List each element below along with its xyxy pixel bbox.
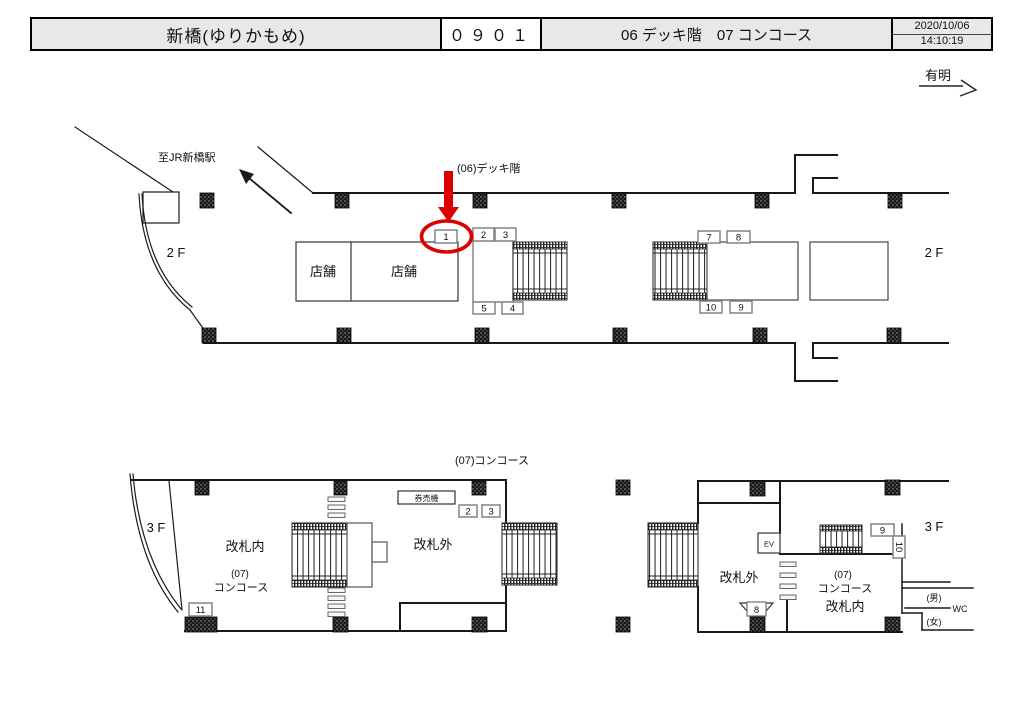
svg-text:10: 10 [893,542,904,553]
inside-gate-label: 改札内 [225,539,264,554]
concourse-right-walls [698,481,948,632]
elevator: EV [758,533,780,553]
women-label: (女) [927,616,942,627]
ad-position-c2[interactable]: 2 [459,505,477,518]
svg-text:EV: EV [764,540,774,549]
stairs-deck-center [513,242,567,300]
concourse-word: コンコース [818,583,872,595]
concourse-right-plan: (男) (女) WC [616,480,973,632]
svg-text:4: 4 [510,304,515,315]
floor-label-2f: 2 F [925,245,944,260]
ticket-machine: 券売機 [398,491,455,504]
room [707,242,798,300]
svg-text:8: 8 [736,233,741,244]
ad-position-r9[interactable]: 9 [871,524,894,537]
room [810,242,888,300]
wc-label: WC [953,604,968,614]
ad-position-5[interactable]: 5 [473,302,495,315]
stairs-concourse-left-east [502,523,557,585]
outside-gate-label: 改札外 [413,537,452,552]
concourse-left-curve [130,474,182,612]
svg-text:11: 11 [196,605,206,616]
floorplan-canvas: 有明 [0,0,1024,724]
ad-position-8[interactable]: 8 [727,231,750,244]
svg-text:3: 3 [503,230,508,241]
concourse-title: (07)コンコース [455,455,529,467]
floor-label-3f: 3 F [147,520,166,535]
stair-landing [473,241,513,302]
svg-text:9: 9 [738,303,743,314]
inside-gate-label: 改札内 [825,599,864,614]
direction-label: 有明 [925,68,951,83]
svg-text:1: 1 [443,232,448,243]
arrow-head-icon [239,169,254,184]
pillar [750,617,765,632]
stairs-concourse-right-east [820,525,862,553]
header-bar: 新橋(ゆりかもめ) ０９０１ 06 デッキ階 07 コンコース 2020/10/… [30,17,993,51]
svg-text:2: 2 [481,230,486,241]
floor-label-3f: 3 F [925,519,944,534]
stairs-concourse-right-west [648,523,698,587]
concourse-code: (07) [231,569,249,580]
ad-position-10[interactable]: 10 [700,301,722,314]
shop-label: 店舗 [310,264,336,279]
shop-label: 店舗 [391,264,417,279]
ad-position-3[interactable]: 3 [495,228,516,241]
ticket-gates [780,562,796,600]
svg-text:券売機: 券売機 [415,493,439,503]
stairs-deck-right [653,242,707,300]
to-jr-label: 至JR新橋駅 [158,150,215,164]
stairs-concourse-center [292,523,347,587]
station-map-screen: 新橋(ゆりかもめ) ０９０１ 06 デッキ階 07 コンコース 2020/10/… [0,0,1024,724]
svg-text:2: 2 [465,507,470,518]
datetime-cell: 2020/10/06 14:10:19 [891,19,991,49]
stair-landing [347,523,372,587]
ad-position-2[interactable]: 2 [473,228,494,241]
svg-text:7: 7 [706,233,711,244]
date-text: 2020/10/06 [893,19,991,35]
deck-floor-plan: 至JR新橋駅 店舗 店舗 [75,127,948,381]
deck-title: (06)デッキ階 [457,161,521,175]
svg-text:9: 9 [880,526,885,537]
ad-position-4[interactable]: 4 [502,302,523,315]
floor-list: 06 デッキ階 07 コンコース [540,19,891,49]
right-arrow-icon [960,80,976,96]
svg-text:3: 3 [488,507,493,518]
ad-position-9[interactable]: 9 [730,301,752,314]
ad-position-r10[interactable]: 10 [893,536,905,558]
wc-block [902,524,973,630]
concourse-word: コンコース [214,582,268,594]
outside-gate-label: 改札外 [719,570,758,585]
station-name: 新橋(ゆりかもめ) [32,19,440,49]
time-text: 14:10:19 [893,35,991,50]
svg-text:5: 5 [481,304,486,315]
landing-tab [372,542,387,562]
red-arrow-icon [444,171,453,208]
svg-text:10: 10 [706,303,717,314]
direction-ariake: 有明 [919,68,976,96]
concourse-left-plan: (07)コンコース [130,455,557,632]
ad-position-c3[interactable]: 3 [482,505,500,518]
floor-label-2f: 2 F [167,245,186,260]
ad-position-1[interactable]: 1 [435,230,457,243]
men-label: (男) [927,593,942,603]
jr-direction-arrow [239,169,291,213]
ad-position-7[interactable]: 7 [698,231,720,244]
station-code: ０９０１ [440,19,540,49]
concourse-code: (07) [834,570,852,581]
ad-position-11[interactable]: 11 [189,603,212,616]
svg-text:8: 8 [754,605,759,616]
ad-position-r8[interactable]: 8 [740,602,773,617]
